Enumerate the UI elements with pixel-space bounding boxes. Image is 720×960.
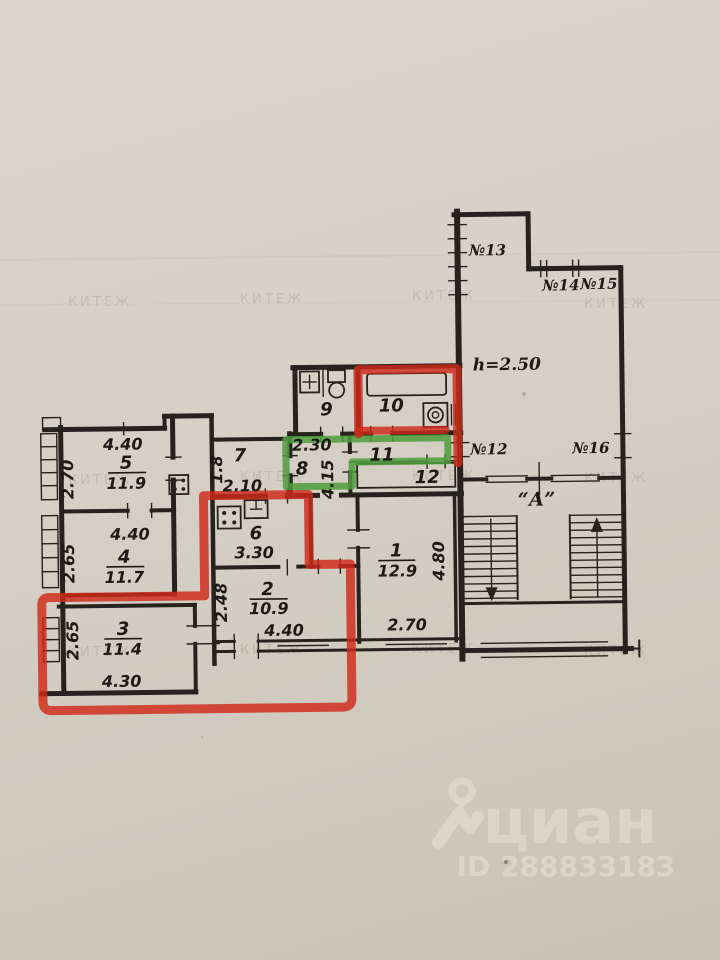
room-12-number: 12 (415, 467, 440, 488)
sink-icon (300, 371, 319, 392)
room-5-dim-side: 2.70 (58, 460, 77, 500)
staircase-label: “А” (518, 488, 556, 510)
window-label-13: №13 (468, 241, 506, 259)
room-1-dim-bottom: 2.70 (387, 615, 427, 634)
cian-logo-text: циан (483, 785, 657, 858)
room-5-number: 5 (120, 453, 133, 474)
room-4-dim-top: 4.40 (109, 524, 150, 543)
bathtub-icon (367, 373, 446, 396)
watermark-text: КИТЕЖ (68, 295, 132, 310)
room-2-area: 10.9 (249, 599, 289, 618)
room-3-number: 3 (117, 619, 130, 640)
room-3-dim-bottom: 4.30 (101, 672, 142, 691)
room-5-dim-top: 4.40 (102, 435, 143, 454)
watermark-text: КИТЕЖ (240, 292, 304, 307)
staircase (464, 515, 625, 604)
room-3-dim-side: 2.65 (63, 621, 82, 661)
watermark-text: КИТЕЖ (412, 289, 476, 304)
room-10-number: 10 (379, 395, 404, 416)
cian-branding: циан ID 288833183 (438, 781, 675, 883)
watermark-text: КИТЕЖ (584, 297, 648, 312)
washing-machine-icon (423, 403, 455, 427)
room-1-number: 1 (390, 540, 403, 561)
toilet-icon (328, 370, 345, 398)
window-label-15: №15 (579, 275, 617, 293)
kitchen-stove-icon (218, 506, 241, 528)
room-9-number: 9 (320, 399, 333, 420)
room-7-dim-bottom: 2.10 (222, 476, 262, 495)
room-1-area: 12.9 (378, 561, 418, 580)
room-6-number: 6 (250, 523, 263, 544)
room-1-dim-side: 4.80 (429, 541, 448, 582)
room-4-number: 4 (117, 547, 131, 568)
room-2-dim-side: 2.48 (212, 583, 231, 623)
walls-sanitary-block (293, 366, 461, 435)
room-7-number: 7 (234, 445, 247, 466)
window-label-14: №14 (541, 276, 579, 294)
floorplan-photo: КИТЕЖ КИТЕЖ КИТЕЖ КИТЕЖ КИТЕЖ КИТЕЖ КИТЕ… (0, 0, 720, 960)
room-8-number: 8 (296, 459, 309, 480)
floorplan-drawing: КИТЕЖ КИТЕЖ КИТЕЖ КИТЕЖ КИТЕЖ КИТЕЖ КИТЕ… (0, 0, 720, 960)
window-label-16: №16 (571, 439, 610, 457)
stair-arrow-up (591, 517, 604, 597)
room-8-dim-side: 4.15 (318, 459, 337, 500)
room-5-area: 11.9 (106, 473, 146, 492)
cian-logo-icon (438, 781, 478, 843)
room-2-dim-bottom: 4.40 (263, 621, 304, 640)
room-2-number: 2 (261, 579, 274, 600)
room-4-area: 11.7 (105, 568, 146, 587)
room-11-number: 11 (369, 444, 394, 465)
listing-id: ID 288833183 (457, 850, 676, 883)
room-8-dim-top: 2.30 (292, 435, 332, 454)
room-4-dim-side: 2.65 (59, 544, 78, 584)
window-label-12: №12 (469, 440, 507, 458)
ceiling-height-label: h=2.50 (473, 355, 541, 376)
room-3-area: 11.4 (102, 640, 142, 659)
room-6-dim-bottom: 3.30 (234, 543, 274, 562)
